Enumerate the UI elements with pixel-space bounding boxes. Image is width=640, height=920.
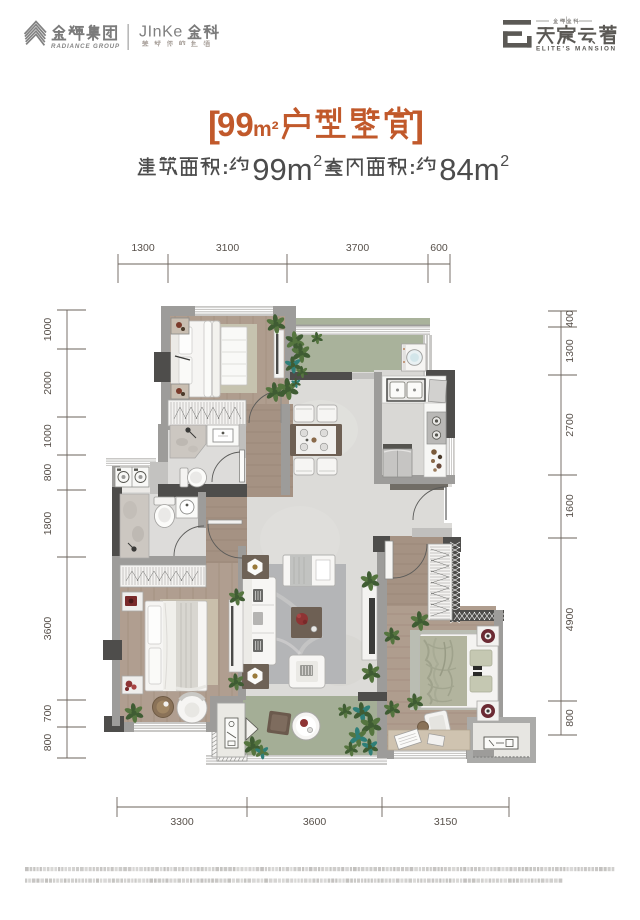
svg-text:1000: 1000 — [42, 424, 54, 448]
svg-text:1800: 1800 — [42, 512, 54, 536]
svg-text:3600: 3600 — [42, 617, 54, 641]
svg-text:3300: 3300 — [170, 816, 194, 828]
svg-text:400: 400 — [564, 310, 576, 328]
svg-text:4900: 4900 — [564, 608, 576, 632]
svg-text:2: 2 — [313, 153, 322, 170]
svg-text:800: 800 — [42, 464, 54, 482]
svg-text:3600: 3600 — [303, 816, 327, 828]
svg-text:2: 2 — [500, 153, 509, 170]
svg-text:1300: 1300 — [131, 242, 155, 254]
svg-text:99m: 99m — [252, 152, 312, 187]
svg-text:700: 700 — [42, 705, 54, 723]
svg-text:800: 800 — [564, 709, 576, 727]
svg-text:800: 800 — [42, 734, 54, 752]
svg-text:JInKe: JInKe — [139, 24, 183, 41]
svg-text::: : — [409, 158, 415, 179]
svg-text:3150: 3150 — [434, 816, 458, 828]
svg-text:ELITE'S MANSION: ELITE'S MANSION — [536, 46, 617, 53]
svg-text:1300: 1300 — [564, 339, 576, 363]
svg-text:1000: 1000 — [42, 318, 54, 342]
svg-text:2700: 2700 — [564, 413, 576, 437]
svg-text:1600: 1600 — [564, 494, 576, 518]
svg-text:84m: 84m — [439, 152, 499, 187]
svg-text:600: 600 — [430, 242, 448, 254]
svg-text:RADIANCE GROUP: RADIANCE GROUP — [51, 43, 120, 50]
svg-text:99: 99 — [217, 106, 254, 143]
svg-text::: : — [222, 158, 228, 179]
svg-text:m²: m² — [253, 118, 279, 141]
svg-text:3100: 3100 — [216, 242, 240, 254]
svg-text:3700: 3700 — [346, 242, 370, 254]
svg-text:]: ] — [412, 104, 424, 145]
svg-text:2000: 2000 — [42, 371, 54, 395]
